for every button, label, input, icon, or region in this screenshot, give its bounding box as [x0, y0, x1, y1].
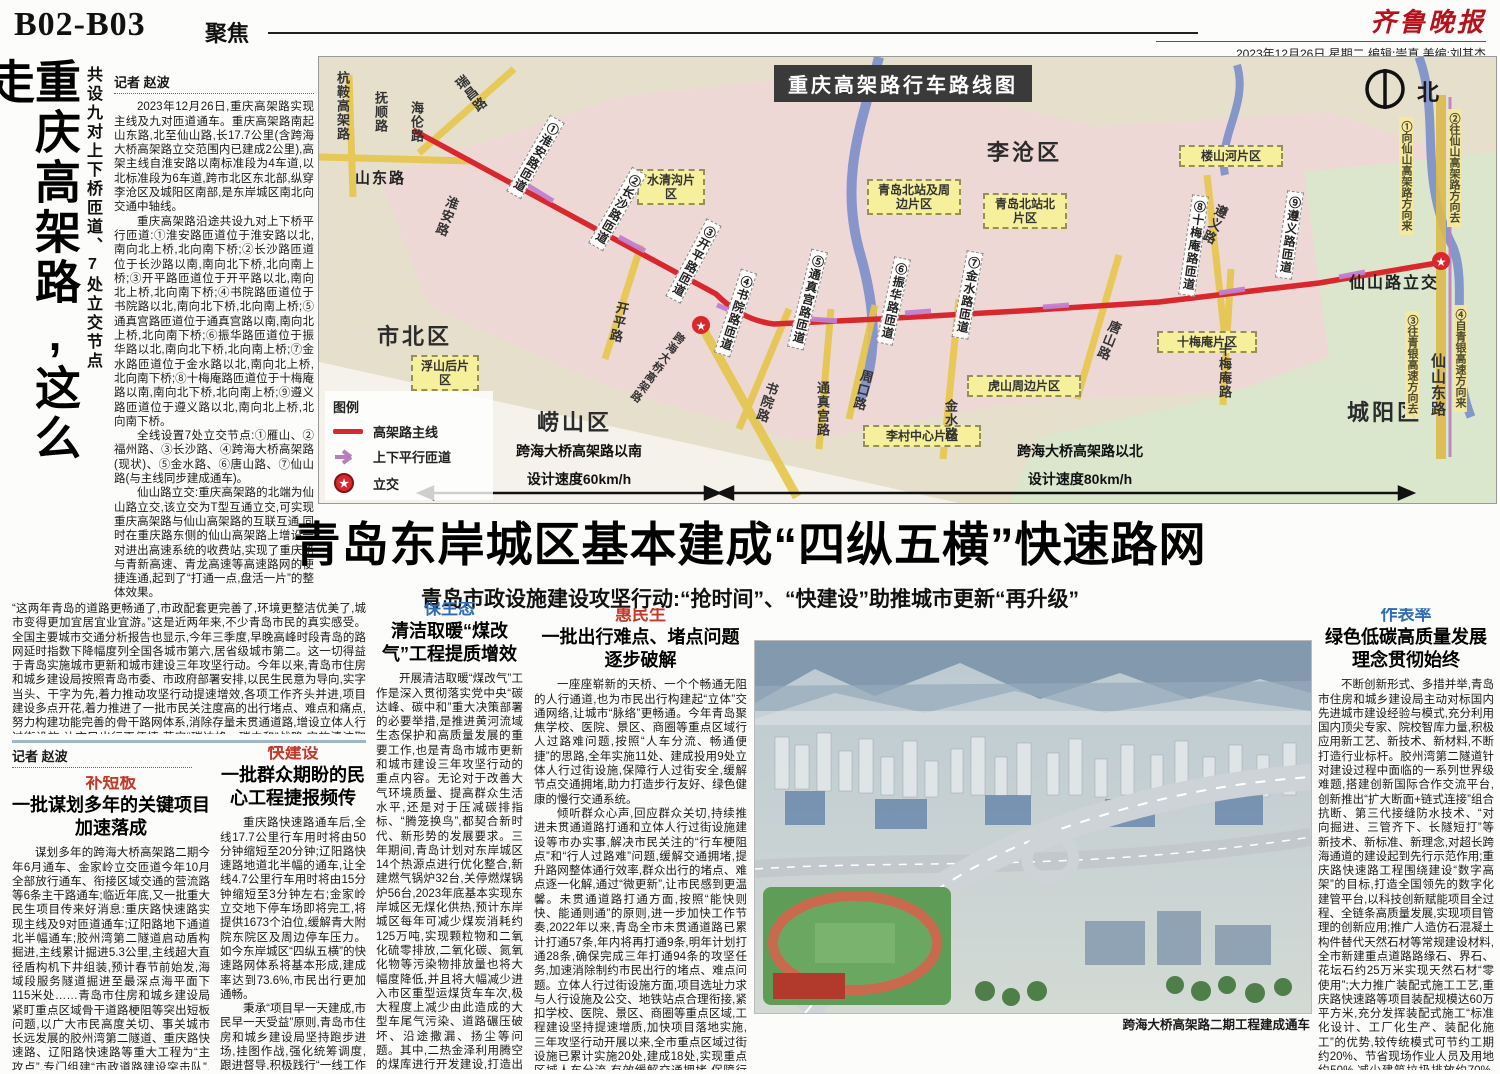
road-label: 十梅庵路 [1215, 343, 1234, 399]
zone-box: 青岛北站及周边片区 [867, 179, 961, 215]
main-byline: 记者 赵波 [12, 750, 192, 768]
section-heading: 一批谋划多年的关键项目加速落成 [12, 794, 210, 840]
section-kuai-jian-she: 快建设 一批群众期盼的民心工程捷报频传 重庆路快速路通车后,全线17.7公里行车… [220, 746, 366, 1070]
masthead: 齐鲁晚报 2023年12月26日 星期二 编辑:崇真 美编:刘其杰 [1156, 2, 1486, 62]
zone-box: 浮山后片区 [411, 355, 479, 391]
district-label: 李沧区 [987, 135, 1062, 167]
direction-label: ③往青银高速方向去 [1405, 311, 1419, 418]
road-label: 抚顺路 [371, 91, 390, 133]
section-tag: 保生态 [376, 602, 523, 616]
road-label: 金水路 [941, 399, 960, 441]
section-paragraph: 开展清洁取暖“煤改气”工作是深入贯彻落实党中央“碳达峰、碳中和”重大决策部署的必… [376, 672, 523, 1070]
road-label: 仙山东路 [1427, 353, 1448, 417]
date-rule [1156, 41, 1486, 42]
north-span-speed: 设计速度80km/h [955, 469, 1205, 489]
north-arrow-icon: 北 [1359, 65, 1449, 115]
newspaper-page: B02-B03 聚焦 齐鲁晚报 2023年12月26日 星期二 编辑:崇真 美编… [0, 0, 1500, 1074]
legend-interchange-icon: ★ [333, 472, 367, 494]
intro-divider [12, 740, 366, 743]
article-intro: “这两年青岛的道路更畅通了,市政配套更完善了,环境更整洁优美了,城市变得更加宜居… [12, 602, 366, 734]
section-tag: 作表率 [1318, 608, 1494, 622]
direction-label: ②往仙山高架路方向去 [1447, 109, 1461, 227]
lead-paragraph: 2023年12月26日,重庆高架路实现主线及九对匝道通车。重庆高架路南起山东路,… [114, 100, 314, 214]
section-paragraph: 一座座崭新的天桥、一个个畅通无阻的人行通道,也为市民出行构建起“立体”交通网络,… [534, 678, 747, 807]
legend-ramp-label: 上下平行匝道 [373, 447, 451, 466]
section-paragraph: 不断创新形式、多措并举,青岛市住房和城乡建设局主动对标国内先进城市建设经验与模式… [1318, 678, 1494, 1070]
section-hui-min-sheng: 惠民生 一批出行难点、堵点问题逐步破解 一座座崭新的天桥、一个个畅通无阻的人行通… [534, 608, 747, 1070]
legend-line-icon [333, 429, 367, 434]
masthead-logo: 齐鲁晚报 [1156, 2, 1486, 39]
section-tag: 补短板 [12, 776, 210, 790]
svg-text:★: ★ [339, 478, 349, 490]
section-paragraph: 重庆路快速路通车后,全线17.7公里行车用时将由50分钟缩短至20分钟;辽阳路快… [220, 816, 366, 1002]
legend-title: 图例 [333, 397, 485, 416]
aerial-photo [754, 640, 1312, 1014]
lead-paragraph: 重庆高架路沿途共设九对上下桥平行匝道:①淮安路匝道位于淮安路以北,南向北上桥,北… [114, 215, 314, 429]
section-bao-sheng-tai: 保生态 清洁取暖“煤改气”工程提质增效 开展清洁取暖“煤改气”工作是深入贯彻落实… [376, 602, 523, 1070]
lead-title: 重庆高架路,这么走 [6, 56, 78, 502]
route-map: ★ ★ 重庆高架路行车路线图 北 市北区 李沧区 崂山区 城阳区 [318, 56, 1497, 504]
legend-main-line-label: 高架路主线 [373, 422, 438, 441]
section-heading: 清洁取暖“煤改气”工程提质增效 [376, 620, 523, 666]
south-span-speed: 设计速度60km/h [459, 469, 699, 489]
interchange-label: 仙山路立交 [1349, 269, 1439, 293]
section-paragraph: 倾听群众心声,回应群众关切,持续推进未贯通道路打通和立体人行过街设施建设等市办实… [534, 807, 747, 1070]
section-bu-duan-ban: 补短板 一批谋划多年的关键项目加速落成 谋划多年的跨海大桥高架路二期今年6月通车… [12, 776, 210, 1070]
zone-box: 楼山河片区 [1179, 145, 1283, 167]
district-label: 市北区 [377, 319, 452, 351]
direction-label: ①向仙山高架路方向来 [1399, 117, 1413, 235]
section-name: 聚焦 [205, 16, 249, 48]
svg-text:★: ★ [696, 319, 707, 333]
section-paragraph: 秉承“项目早一天建成,市民早一天受益”原则,青岛市住房和城乡建设局坚持跑步进场,… [220, 1002, 366, 1070]
main-headline-block: 青岛东岸城区基本建成“四纵五横”快速路网 青岛市政设施建设攻坚行动:“抢时间”、… [0, 506, 1500, 613]
road-label: 山东路 [355, 167, 406, 188]
legend-ramp-icon [333, 449, 367, 465]
lead-article: 重庆高架路,这么走 共设九对上下桥匝道、7处立交节点 记者 赵波 2023年12… [6, 56, 318, 502]
section-heading: 一批群众期盼的民心工程捷报频传 [220, 764, 366, 810]
lead-paragraph: 全线设置7处立交节点:①雁山、②福州路、③长沙路、④跨海大桥高架路(现状)、⑤金… [114, 429, 314, 486]
road-label: 海伦路 [407, 101, 426, 143]
south-span-label: 跨海大桥高架路以南 设计速度60km/h [459, 441, 699, 489]
page-header: B02-B03 聚焦 齐鲁晚报 2023年12月26日 星期二 编辑:崇真 美编… [0, 0, 1500, 52]
header-rule [268, 32, 1198, 34]
section-tag: 惠民生 [534, 608, 747, 622]
section-zuo-biao-lv: 作表率 绿色低碳高质量发展理念贯彻始终 不断创新形式、多措并举,青岛市住房和城乡… [1318, 608, 1494, 1070]
direction-label: ④自青银高速方向来 [1453, 305, 1467, 412]
legend-interchange-label: 立交 [373, 474, 399, 493]
edition-number: B02-B03 [14, 6, 146, 44]
svg-text:★: ★ [1436, 255, 1447, 269]
section-paragraph: 谋划多年的跨海大桥高架路二期今年6月通车、金家岭立交匝道今年10月全部放行通车、… [12, 846, 210, 1070]
map-title: 重庆高架路行车路线图 [774, 65, 1032, 102]
aerial-photo-graphic [755, 641, 1311, 1013]
south-span-name: 跨海大桥高架路以南 [459, 441, 699, 461]
photo-caption: 跨海大桥高架路二期工程建成通车 [754, 1018, 1310, 1032]
lead-subtitle: 共设九对上下桥匝道、7处立交节点 [80, 66, 104, 502]
main-headline: 青岛东岸城区基本建成“四纵五横”快速路网 [0, 506, 1500, 575]
north-label: 北 [1417, 75, 1439, 107]
section-heading: 绿色低碳高质量发展理念贯彻始终 [1318, 626, 1494, 672]
zone-box: 虎山周边片区 [967, 375, 1081, 397]
lead-byline: 记者 赵波 [114, 76, 314, 94]
road-label: 杭鞍高架路 [333, 71, 352, 141]
section-heading: 一批出行难点、堵点问题逐步破解 [534, 626, 747, 672]
road-label: 通真宫路 [813, 381, 832, 437]
zone-box: 十梅庵片区 [1157, 331, 1257, 353]
north-span-label: 跨海大桥高架路以北 设计速度80km/h [955, 441, 1205, 489]
district-label: 崂山区 [537, 405, 612, 437]
zone-box: 青岛北站北片区 [983, 193, 1067, 229]
north-span-name: 跨海大桥高架路以北 [955, 441, 1205, 461]
section-tag: 快建设 [220, 746, 366, 760]
main-article-body: “这两年青岛的道路更畅通了,市政配套更完善了,环境更整洁优美了,城市变得更加宜居… [0, 600, 1500, 1074]
lead-body: 记者 赵波 2023年12月26日,重庆高架路实现主线及九对匝道通车。重庆高架路… [106, 56, 318, 502]
